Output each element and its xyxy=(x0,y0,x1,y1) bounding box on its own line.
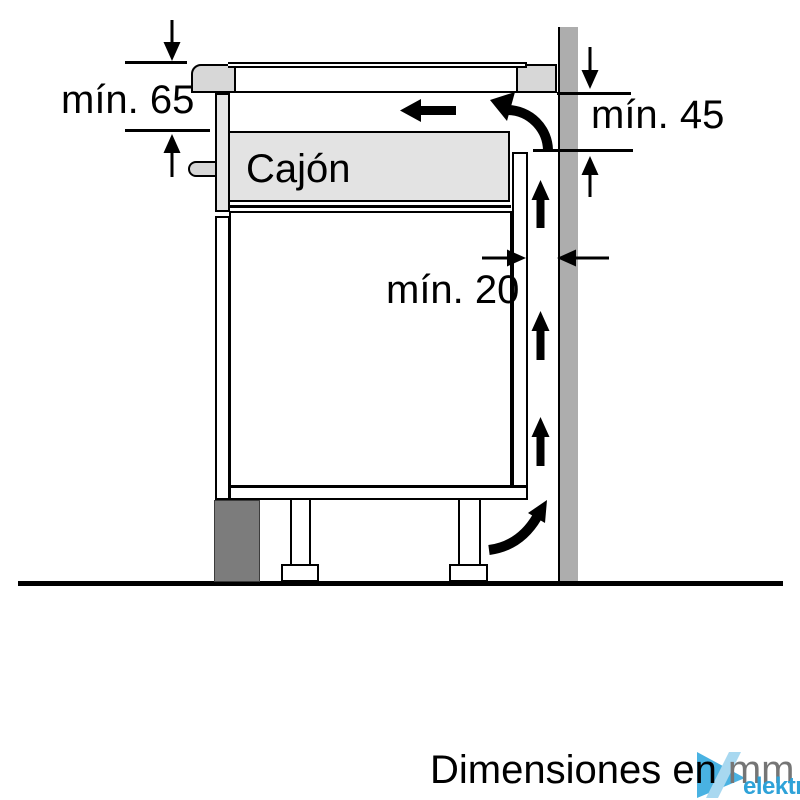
dim-arrow-up-top-left xyxy=(164,134,181,177)
hob-trim-right xyxy=(516,64,557,93)
dim-line-65-bottom xyxy=(125,129,210,132)
cabinet-leg-left xyxy=(290,500,311,568)
airflow-up-arrow-2 xyxy=(532,311,550,360)
airflow-curved-arrow-bottom xyxy=(489,500,547,550)
dim-line-65-top xyxy=(125,61,187,64)
installation-diagram: mín. 65 mín. 45 mín. 20 Cajón Dimensione… xyxy=(0,0,800,800)
cabinet-front-rail-upper xyxy=(215,93,230,212)
dim-arrow-up-right xyxy=(582,156,599,197)
brand-name: elektra xyxy=(743,775,800,799)
floor-line xyxy=(18,581,783,586)
hob-trim-left xyxy=(191,64,236,93)
drawer-label: Cajón xyxy=(246,149,351,189)
hob-body xyxy=(234,64,518,93)
wall-section xyxy=(558,27,578,581)
clearance-rear-label: mín. 20 xyxy=(386,270,519,310)
clearance-top-label: mín. 65 xyxy=(61,80,194,120)
clearance-right-label: mín. 45 xyxy=(591,95,724,135)
airflow-up-arrow-1 xyxy=(532,180,550,228)
cabinet-front-rail-lower xyxy=(215,216,230,500)
cabinet-leg-right xyxy=(458,500,481,568)
cabinet-bottom-panel xyxy=(229,486,528,500)
cabinet-cavity xyxy=(229,211,512,487)
cabinet-back-panel xyxy=(512,152,528,487)
footer-text: Dimensiones en xyxy=(430,748,717,792)
cabinet-leg-left-foot xyxy=(281,564,319,582)
airflow-up-arrow-3 xyxy=(532,417,550,466)
airflow-left-arrow xyxy=(400,99,456,122)
cabinet-leg-right-foot xyxy=(449,564,488,582)
hob-glass-top xyxy=(228,62,527,68)
dim-arrow-down-right xyxy=(582,47,599,89)
dim-arrow-down-top-left xyxy=(164,20,181,61)
footer-caption: Dimensiones enmm xyxy=(430,750,794,790)
plinth-block xyxy=(214,500,260,582)
drawer-shelf-line xyxy=(228,205,511,208)
dim-line-45-bottom xyxy=(533,149,633,152)
drawer-handle xyxy=(188,161,217,177)
